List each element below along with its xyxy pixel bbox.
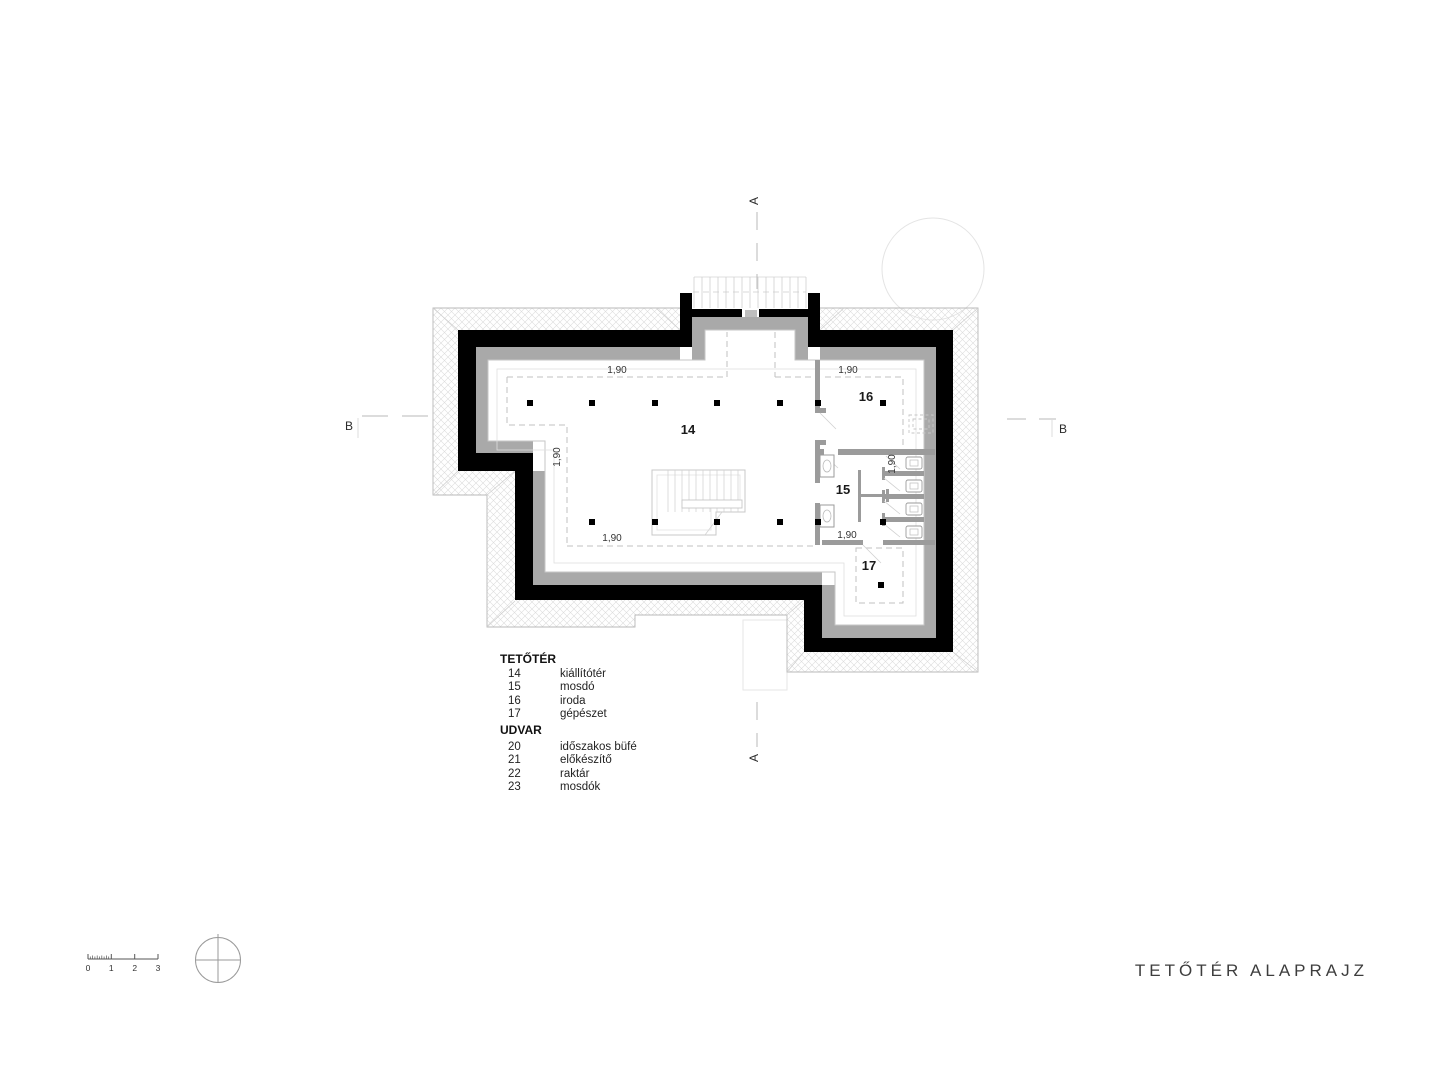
drawing-title: TETŐTÉR ALAPRAJZ (1135, 961, 1368, 980)
lower-level-bay-outline (743, 620, 787, 690)
room-label-17: 17 (862, 558, 876, 573)
legend-num: 16 (508, 695, 521, 707)
toilet (906, 457, 922, 469)
legend-num: 20 (508, 741, 521, 753)
legend-num: 23 (508, 781, 521, 793)
scale-major-ticks (88, 954, 158, 959)
legend-num: 14 (508, 668, 521, 680)
section-marker-b-right: B (1059, 422, 1067, 436)
legend-label: időszakos büfé (560, 741, 637, 753)
exterior-entrance-stair (681, 269, 819, 309)
dim-label: 1,90 (838, 365, 858, 376)
section-marker-a-bottom: A (747, 754, 761, 762)
room-label-16: 16 (859, 389, 873, 404)
toilet (906, 480, 922, 492)
legend-label: gépészet (560, 708, 607, 720)
legend-label: mosdó (560, 681, 595, 693)
legend-num: 22 (508, 768, 521, 780)
scale-minor-ticks (90, 956, 108, 960)
legend-label: előkészítő (560, 754, 612, 766)
stair-handrail (682, 500, 742, 508)
legend-num: 15 (508, 681, 521, 693)
toilet (906, 526, 922, 538)
dim-label: 1,90 (552, 447, 563, 467)
scale-bar: 0 1 2 3 (86, 954, 161, 973)
legend-num: 21 (508, 754, 521, 766)
scale-label-1: 1 (109, 963, 114, 973)
drawing-sheet: 14 15 16 17 1,90 1,90 1,90 1,90 1,90 1,9… (0, 0, 1438, 1078)
dim-label: 1,90 (887, 454, 898, 474)
legend-num: 17 (508, 708, 521, 720)
dim-label: 1,90 (837, 530, 857, 541)
room-label-14: 14 (681, 422, 696, 437)
entry-door-leaf (745, 310, 757, 317)
dim-label: 1,90 (602, 533, 622, 544)
legend-label: mosdók (560, 781, 601, 793)
scale-label-3: 3 (156, 963, 161, 973)
tree-outline (882, 218, 984, 320)
dim-label: 1,90 (607, 365, 627, 376)
scale-label-2: 2 (132, 963, 137, 973)
legend-label: kiállítótér (560, 668, 606, 680)
floor-plan-canvas: 14 15 16 17 1,90 1,90 1,90 1,90 1,90 1,9… (0, 0, 1438, 1078)
section-marker-b-left: B (345, 419, 353, 433)
sink-counter (820, 455, 834, 477)
scale-label-0: 0 (86, 963, 91, 973)
legend: TETŐTÉR 14 kiállítótér 15 mosdó 16 iroda… (500, 651, 637, 793)
section-marker-a-top: A (747, 197, 761, 205)
legend-heading-tetoter: TETŐTÉR (500, 651, 556, 666)
sink-counter (820, 505, 834, 527)
legend-label: raktár (560, 768, 590, 780)
legend-heading-udvar: UDVAR (500, 723, 542, 737)
room-label-15: 15 (836, 482, 850, 497)
toilet (906, 503, 922, 515)
legend-label: iroda (560, 695, 586, 707)
north-indicator (195, 934, 241, 983)
